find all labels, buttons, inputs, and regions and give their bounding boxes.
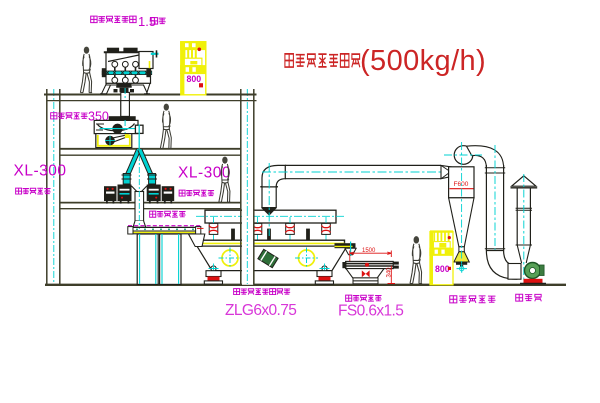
- svg-text:800: 800: [435, 264, 450, 274]
- svg-text:F600: F600: [454, 181, 469, 188]
- svg-text:(500kg/h): (500kg/h): [360, 45, 486, 77]
- svg-text:FS0.6x1.5: FS0.6x1.5: [338, 303, 403, 320]
- svg-text:1.5: 1.5: [138, 14, 156, 29]
- svg-text:340: 340: [386, 267, 392, 278]
- svg-text:ZLG6x0.75: ZLG6x0.75: [225, 302, 296, 319]
- svg-text:XL-300: XL-300: [178, 165, 231, 182]
- svg-text:XL-300: XL-300: [14, 163, 67, 180]
- svg-text:800: 800: [187, 74, 202, 84]
- svg-text:1500: 1500: [362, 248, 376, 254]
